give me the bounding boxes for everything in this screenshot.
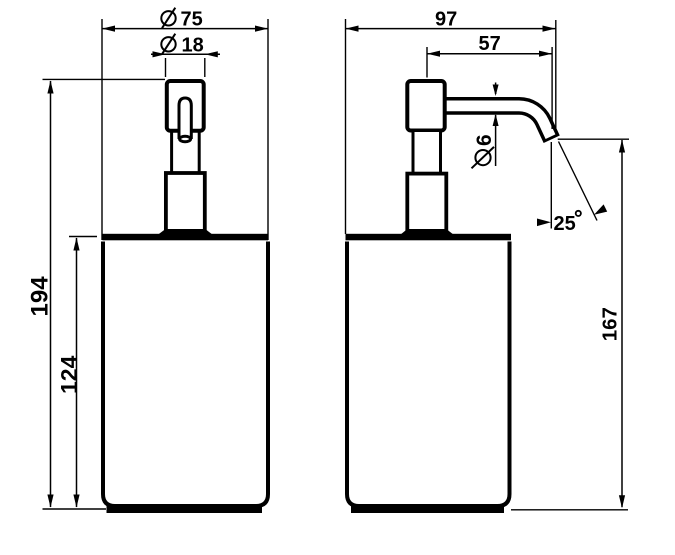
svg-text:124: 124	[56, 355, 82, 394]
svg-text:167: 167	[599, 307, 622, 341]
svg-text:75: 75	[181, 8, 203, 30]
svg-text:25: 25	[554, 213, 576, 235]
svg-text:194: 194	[27, 276, 54, 317]
svg-text:97: 97	[435, 9, 457, 31]
svg-text:6: 6	[473, 134, 496, 146]
svg-text:57: 57	[479, 33, 501, 55]
svg-text:18: 18	[182, 34, 204, 56]
